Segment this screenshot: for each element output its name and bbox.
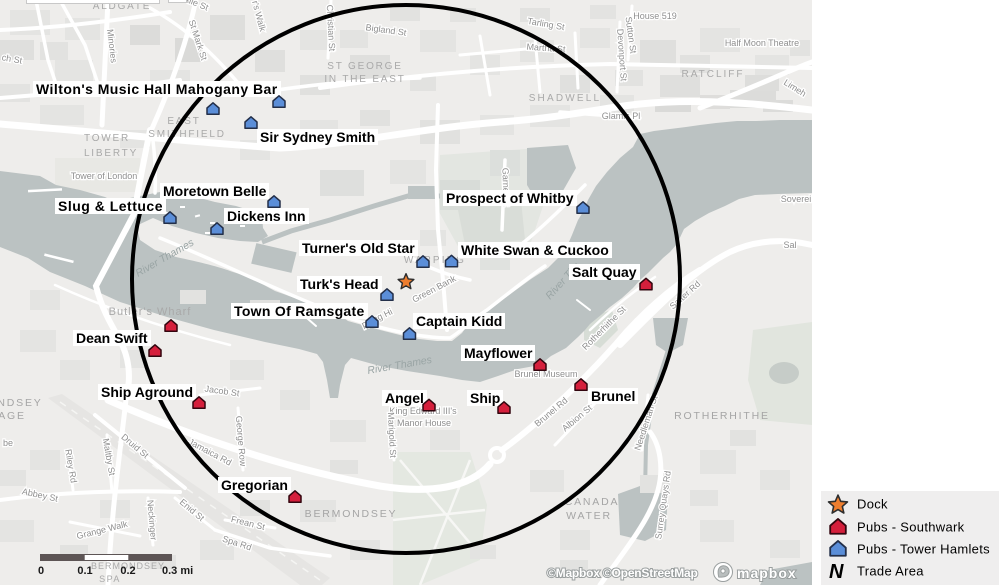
svg-text:N: N	[829, 561, 844, 583]
